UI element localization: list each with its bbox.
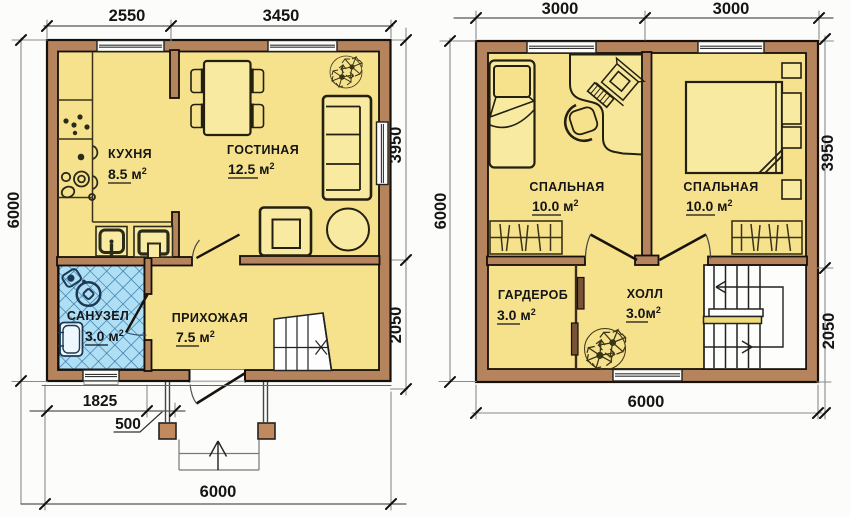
svg-text:ГОСТИНАЯ: ГОСТИНАЯ (227, 143, 299, 157)
svg-text:КУХНЯ: КУХНЯ (108, 147, 152, 161)
svg-text:3.0 м2: 3.0 м2 (497, 307, 536, 323)
svg-text:1825: 1825 (83, 393, 118, 410)
svg-text:2550: 2550 (109, 7, 146, 25)
svg-text:3000: 3000 (713, 0, 750, 18)
svg-text:8.5 м2: 8.5 м2 (108, 166, 147, 182)
svg-text:СПАЛЬНАЯ: СПАЛЬНАЯ (529, 180, 604, 194)
svg-text:ПРИХОЖАЯ: ПРИХОЖАЯ (172, 311, 248, 325)
svg-text:6000: 6000 (628, 393, 665, 411)
svg-text:10.0 м2: 10.0 м2 (532, 198, 579, 214)
svg-text:САНУЗЕЛ: САНУЗЕЛ (67, 309, 129, 323)
svg-text:500: 500 (115, 416, 141, 433)
svg-text:3950: 3950 (387, 127, 405, 164)
svg-text:6000: 6000 (200, 483, 237, 501)
svg-text:2050: 2050 (387, 307, 405, 344)
svg-text:10.0 м2: 10.0 м2 (686, 198, 733, 214)
svg-text:ХОЛЛ: ХОЛЛ (627, 287, 664, 301)
svg-text:ГАРДЕРОБ: ГАРДЕРОБ (498, 288, 568, 302)
svg-text:6000: 6000 (5, 192, 23, 229)
svg-text:2050: 2050 (820, 313, 838, 350)
svg-text:3950: 3950 (819, 135, 837, 172)
svg-text:3450: 3450 (263, 7, 300, 25)
svg-text:3.0м2: 3.0м2 (626, 305, 661, 321)
svg-text:12.5 м2: 12.5 м2 (228, 161, 275, 177)
svg-text:7.5 м2: 7.5 м2 (176, 329, 215, 345)
svg-text:3.0 м2: 3.0 м2 (85, 328, 124, 344)
svg-text:3000: 3000 (542, 0, 579, 18)
svg-text:6000: 6000 (432, 193, 450, 230)
svg-text:СПАЛЬНАЯ: СПАЛЬНАЯ (683, 180, 758, 194)
